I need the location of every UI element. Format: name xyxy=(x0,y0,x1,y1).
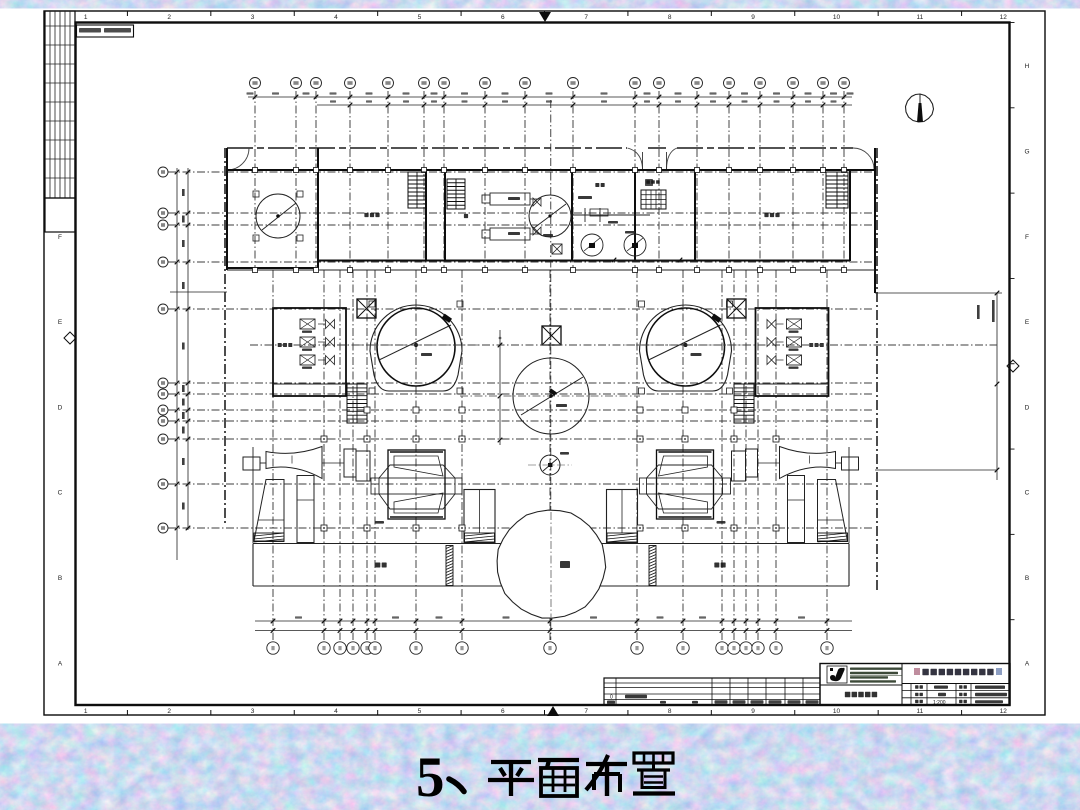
svg-text:A: A xyxy=(1025,660,1030,667)
svg-text:5: 5 xyxy=(418,14,422,21)
svg-text:9: 9 xyxy=(751,708,755,715)
svg-text:8: 8 xyxy=(668,708,672,715)
svg-text:C: C xyxy=(1025,490,1030,497)
svg-text:7: 7 xyxy=(584,708,588,715)
svg-text:5: 5 xyxy=(416,746,445,809)
svg-text:4: 4 xyxy=(334,14,338,21)
svg-text:C: C xyxy=(58,490,63,497)
svg-text:A: A xyxy=(58,660,63,667)
svg-text:11: 11 xyxy=(917,708,924,715)
svg-text:0: 0 xyxy=(610,695,613,701)
svg-text:2: 2 xyxy=(167,708,171,715)
svg-text:6: 6 xyxy=(501,14,505,21)
svg-text:H: H xyxy=(1025,63,1030,70)
svg-text:12: 12 xyxy=(1000,14,1008,21)
svg-text:3: 3 xyxy=(251,14,255,21)
svg-text:D: D xyxy=(1025,404,1030,411)
svg-text:E: E xyxy=(1025,319,1030,326)
svg-text:E: E xyxy=(58,319,63,326)
svg-text:2: 2 xyxy=(167,14,171,21)
svg-text:F: F xyxy=(1025,234,1029,241)
svg-text:1:200: 1:200 xyxy=(933,700,946,706)
svg-text:10: 10 xyxy=(833,708,841,715)
svg-text:B: B xyxy=(58,575,62,582)
svg-text:12: 12 xyxy=(1000,708,1008,715)
svg-text:B: B xyxy=(1025,575,1029,582)
svg-text:4: 4 xyxy=(334,708,338,715)
svg-text:G: G xyxy=(1024,148,1029,155)
svg-text:6: 6 xyxy=(501,708,505,715)
svg-text:7: 7 xyxy=(584,14,588,21)
svg-text:9: 9 xyxy=(751,14,755,21)
svg-text:10: 10 xyxy=(833,14,841,21)
svg-text:3: 3 xyxy=(251,708,255,715)
svg-text:F: F xyxy=(58,234,62,241)
svg-text:11: 11 xyxy=(917,14,924,21)
svg-text:1: 1 xyxy=(84,14,88,21)
svg-text:1: 1 xyxy=(84,708,88,715)
svg-text:8: 8 xyxy=(668,14,672,21)
svg-text:D: D xyxy=(58,404,63,411)
svg-text:5: 5 xyxy=(418,708,422,715)
